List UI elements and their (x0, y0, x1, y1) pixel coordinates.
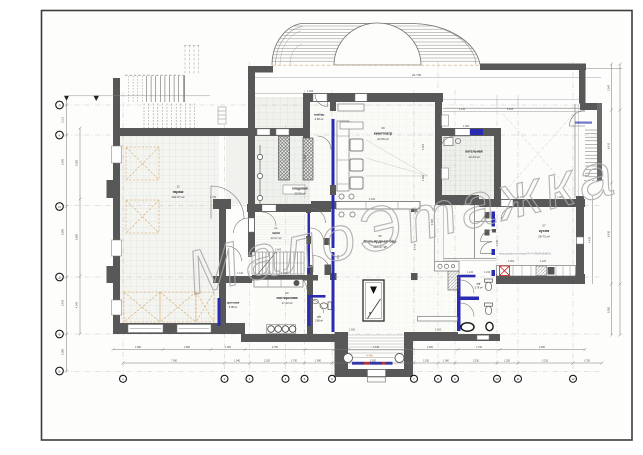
svg-text:22.59 м²: 22.59 м² (377, 137, 388, 141)
svg-text:2.410: 2.410 (459, 108, 466, 111)
svg-text:17.12 м²: 17.12 м² (282, 301, 293, 305)
svg-text:1.480: 1.480 (463, 125, 470, 128)
svg-text:5.050: 5.050 (608, 306, 611, 313)
svg-text:1.300: 1.300 (307, 90, 314, 93)
svg-text:11: 11 (516, 377, 519, 381)
svg-text:1.750: 1.750 (584, 360, 591, 363)
svg-text:3.90 м²: 3.90 м² (315, 117, 324, 121)
svg-text:5.020: 5.020 (370, 360, 377, 363)
svg-text:1.060: 1.060 (443, 360, 450, 363)
svg-text:2.090: 2.090 (62, 348, 65, 355)
svg-text:4.340: 4.340 (76, 301, 79, 308)
svg-text:щитовая: щитовая (227, 301, 240, 305)
svg-text:К: К (59, 133, 61, 137)
svg-text:7.360: 7.360 (171, 360, 178, 363)
svg-text:с/у: с/у (317, 315, 321, 319)
svg-text:2.000: 2.000 (427, 346, 434, 349)
svg-text:кухня: кухня (539, 229, 549, 233)
svg-text:09: 09 (381, 126, 385, 130)
svg-text:1.240: 1.240 (467, 271, 474, 274)
svg-text:1.480: 1.480 (422, 174, 425, 181)
svg-text:5.690: 5.690 (76, 233, 79, 240)
svg-text:кинотеатр: кинотеатр (374, 132, 393, 136)
svg-text:3.420: 3.420 (62, 299, 65, 306)
svg-text:с/у: с/у (477, 282, 481, 286)
svg-text:2.443: 2.443 (255, 208, 262, 211)
svg-text:1.500: 1.500 (349, 329, 356, 332)
svg-text:www.youtube.com/watch?v=YcRa0P: www.youtube.com/watch?v=YcRa0PpfbMSH… (499, 252, 554, 256)
svg-text:2.86 м²: 2.86 м² (315, 320, 323, 323)
svg-text:5.605: 5.605 (507, 108, 514, 111)
svg-text:Б: Б (59, 369, 61, 373)
svg-text:4.250: 4.250 (539, 346, 546, 349)
svg-text:2.240: 2.240 (496, 239, 499, 246)
svg-text:1.790: 1.790 (476, 346, 483, 349)
svg-text:1.240: 1.240 (484, 271, 491, 274)
svg-text:1.990: 1.990 (135, 346, 142, 349)
svg-text:10: 10 (495, 377, 499, 381)
svg-text:тамбур: тамбур (314, 113, 325, 117)
svg-text:2.110: 2.110 (62, 116, 65, 122)
svg-text:3.405: 3.405 (422, 143, 425, 150)
svg-text:3.78 м²: 3.78 м² (474, 287, 482, 290)
svg-text:И: И (58, 205, 60, 209)
svg-text:1.990: 1.990 (315, 360, 322, 363)
svg-text:1.360: 1.360 (225, 346, 232, 349)
svg-text:1.510: 1.510 (423, 360, 430, 363)
svg-text:25.90 м²: 25.90 м² (295, 191, 306, 195)
svg-text:2.800: 2.800 (304, 154, 307, 161)
svg-text:4.440: 4.440 (366, 354, 373, 358)
svg-text:3.540: 3.540 (62, 158, 65, 165)
svg-text:4.470: 4.470 (589, 236, 592, 243)
svg-text:2.750: 2.750 (272, 346, 279, 349)
svg-text:Л: Л (59, 103, 61, 107)
svg-text:22.700: 22.700 (412, 73, 422, 77)
svg-text:Д: Д (58, 275, 60, 279)
svg-text:1.250: 1.250 (504, 360, 511, 363)
svg-text:2.320: 2.320 (264, 360, 271, 363)
svg-text:котельная: котельная (465, 150, 482, 154)
svg-text:12: 12 (176, 185, 180, 189)
svg-text:В: В (58, 332, 60, 336)
svg-text:1.780: 1.780 (210, 196, 217, 199)
svg-text:0.900: 0.900 (508, 260, 515, 263)
svg-text:1.750: 1.750 (291, 360, 298, 363)
svg-text:12: 12 (571, 377, 575, 381)
svg-text:гараж: гараж (173, 190, 184, 194)
svg-text:8.430: 8.430 (608, 230, 611, 237)
svg-text:2.000: 2.000 (435, 329, 442, 332)
svg-text:03: 03 (286, 291, 289, 295)
svg-text:3.210: 3.210 (542, 360, 549, 363)
svg-text:1.040: 1.040 (234, 360, 241, 363)
svg-text:5.98 м²: 5.98 м² (229, 305, 238, 309)
svg-text:2.220: 2.220 (540, 260, 547, 263)
svg-text:4.440: 4.440 (373, 346, 380, 349)
svg-text:102.67 м²: 102.67 м² (171, 195, 184, 199)
svg-text:2.580: 2.580 (184, 346, 191, 349)
svg-text:5.390: 5.390 (76, 159, 79, 166)
svg-text:2.510: 2.510 (473, 360, 480, 363)
svg-text:12.44 м²: 12.44 м² (468, 155, 479, 159)
svg-text:28.73 м²: 28.73 м² (538, 235, 549, 239)
svg-text:5.990: 5.990 (62, 228, 65, 235)
svg-text:кладовая: кладовая (292, 187, 308, 191)
svg-text:постирочная: постирочная (276, 296, 297, 300)
svg-text:2.540: 2.540 (608, 84, 611, 91)
